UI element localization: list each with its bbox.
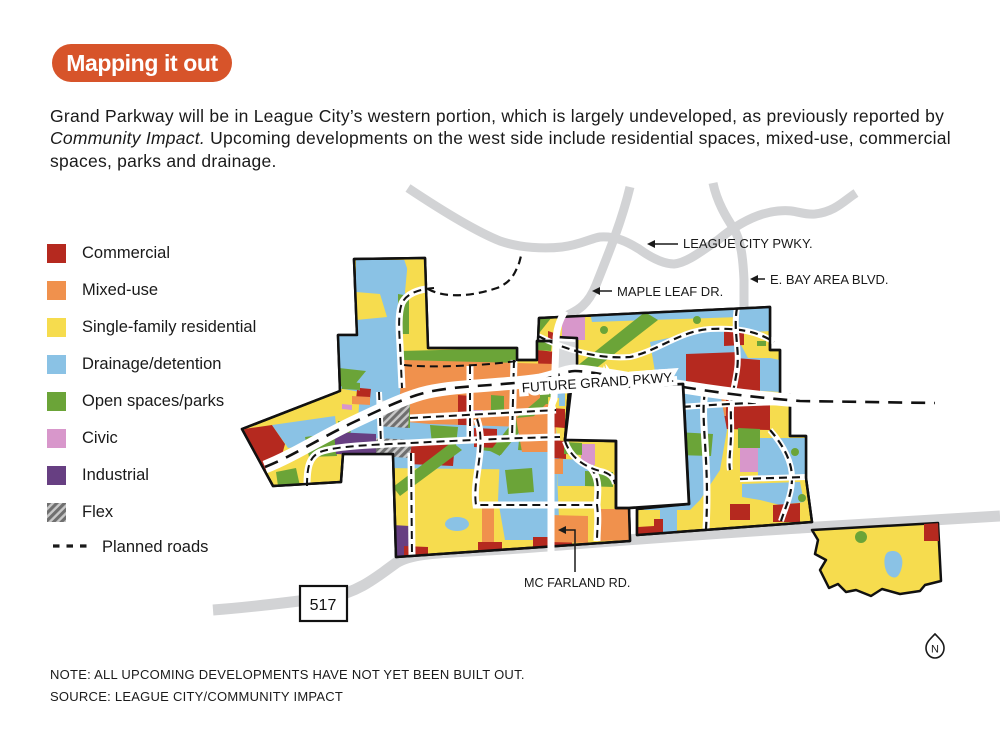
svg-text:N: N [931,644,939,656]
svg-text:517: 517 [310,597,337,614]
svg-text:LEAGUE CITY PWKY.: LEAGUE CITY PWKY. [683,236,813,251]
svg-text:E. BAY AREA BLVD.: E. BAY AREA BLVD. [770,272,889,287]
svg-text:MAPLE LEAF DR.: MAPLE LEAF DR. [617,284,723,299]
svg-text:MC FARLAND RD.: MC FARLAND RD. [524,576,630,590]
